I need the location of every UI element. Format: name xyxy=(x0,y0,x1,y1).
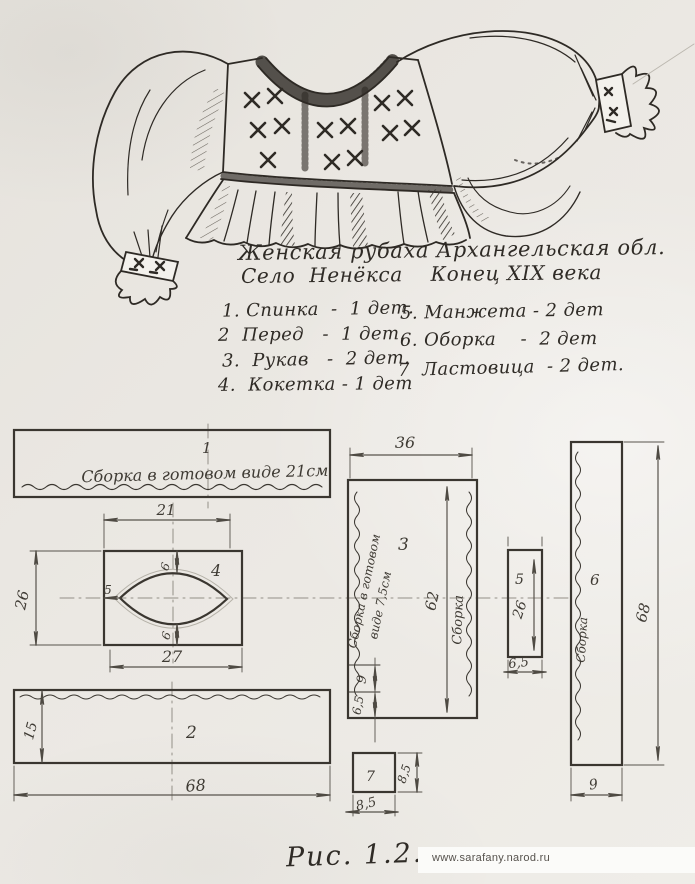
piece-1-note: Сборка в готовом виде 21см xyxy=(81,461,329,486)
dim-piece3-9: 9 xyxy=(354,674,370,685)
piece-6-number: 6 xyxy=(590,571,600,589)
title-line-2: Село Ненёкса Конец XIX века xyxy=(241,260,602,288)
dim-piece6-width: 9 xyxy=(588,776,599,793)
watermark-strip: www.sarafany.narod.ru xyxy=(418,847,695,873)
dim-piece6-height: 68 xyxy=(632,601,654,624)
wavy-gather-edge xyxy=(22,485,322,490)
collar-hatch-band xyxy=(262,60,393,100)
pattern-piece-1-back: 1 Сборка в готовом виде 21см xyxy=(14,430,330,497)
dim-piece3-top: 36 xyxy=(395,433,415,452)
parts-list-item-6: 6. Оборка - 2 дет xyxy=(400,328,598,351)
dimension-labels: 21 27 26 6 6 5 36 62 9 6,5 8,5 8,5 26 6,… xyxy=(11,433,654,814)
wavy-gather-edge-right xyxy=(467,492,472,696)
dim-piece3-length: 62 xyxy=(421,590,443,612)
dim-piece2-width: 68 xyxy=(185,775,207,795)
parts-list-item-2: 2 Перед - 1 дет. xyxy=(218,323,406,346)
piece-3-gather-word: Сборка xyxy=(450,595,467,645)
wavy-gather-edge xyxy=(576,452,581,740)
dim-piece2-height: 15 xyxy=(21,720,41,741)
parts-list-item-1: 1. Спинка - 1 дет. xyxy=(222,297,415,321)
underarm-drape xyxy=(454,175,580,237)
piece-5-number: 5 xyxy=(515,572,524,588)
figure-caption: Рис. 1.2. xyxy=(286,838,424,874)
parts-list-item-3: 3. Рукав - 2 дет. xyxy=(222,347,411,371)
left-cuff xyxy=(121,252,178,281)
dim-piece4-gap-bottom: 6 xyxy=(158,629,174,641)
wavy-gather-edge xyxy=(20,695,320,699)
parts-list-item-4: 4. Кокетка - 1 дет xyxy=(218,373,413,396)
dim-piece4-side: 26 xyxy=(11,588,33,612)
dimension-lines xyxy=(14,442,664,816)
piece-4-number: 4 xyxy=(210,561,221,580)
pattern-piece-7-gusset: 7 xyxy=(353,753,395,792)
right-cuff xyxy=(596,74,631,132)
dim-piece4-inset: 5 xyxy=(104,583,112,597)
drawing-layer: 1 Сборка в готовом виде 21см 2 3 Сборка … xyxy=(0,0,695,884)
dim-piece4-top: 21 xyxy=(155,501,175,519)
piece-3-number: 3 xyxy=(398,535,409,555)
parts-list-item-5: 5. Манжета - 2 дет xyxy=(400,299,604,324)
piece-1-number: 1 xyxy=(202,439,212,457)
right-sleeve xyxy=(397,31,694,187)
left-sleeve xyxy=(93,52,228,305)
dim-piece5-width: 6,5 xyxy=(508,655,530,672)
piece-2-number: 2 xyxy=(185,723,197,743)
dim-piece5-length: 26 xyxy=(510,599,531,622)
piece-6-gather-word: Сборка xyxy=(574,617,590,663)
watermark-url: www.sarafany.narod.ru xyxy=(432,852,550,864)
dim-piece7-side: 8,5 xyxy=(395,763,414,785)
pattern-piece-6-frill: 6 Сборка xyxy=(571,442,622,765)
scanned-pattern-sheet: 1 Сборка в готовом виде 21см 2 3 Сборка … xyxy=(0,0,695,884)
shirt-yoke xyxy=(221,57,454,193)
piece-7-number: 7 xyxy=(366,769,375,785)
dim-piece4-bottom: 27 xyxy=(161,647,183,666)
dim-piece3-65: 6,5 xyxy=(350,695,367,716)
pattern-diagram: 1 Сборка в готовом виде 21см 2 3 Сборка … xyxy=(11,424,664,816)
